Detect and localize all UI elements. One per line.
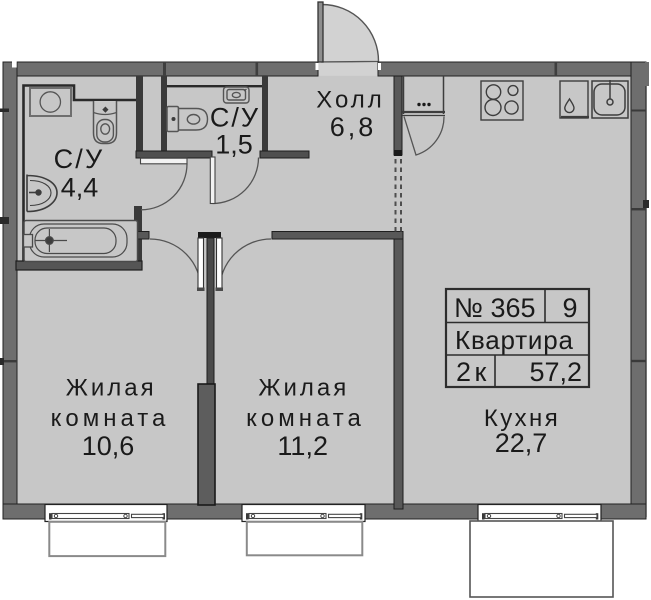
svg-text:Жилая: Жилая — [258, 375, 349, 402]
svg-text:57,2: 57,2 — [529, 357, 582, 387]
svg-text:С/У: С/У — [54, 144, 105, 174]
svg-text:6,8: 6,8 — [330, 112, 377, 142]
svg-text:1,5: 1,5 — [215, 130, 253, 160]
svg-text:комната: комната — [246, 405, 365, 432]
svg-text:11,2: 11,2 — [277, 431, 328, 461]
svg-text:2к: 2к — [456, 357, 490, 387]
svg-text:Жилая: Жилая — [66, 375, 157, 402]
svg-text:22,7: 22,7 — [495, 428, 548, 458]
svg-text:комната: комната — [51, 405, 170, 432]
svg-text:10,6: 10,6 — [82, 431, 135, 461]
svg-text:№ 365: № 365 — [454, 293, 536, 323]
svg-text:Квартира: Квартира — [455, 325, 574, 355]
svg-text:4,4: 4,4 — [61, 173, 99, 203]
svg-text:Холл: Холл — [316, 87, 385, 114]
svg-text:9: 9 — [562, 293, 577, 323]
svg-text:С/У: С/У — [210, 103, 260, 133]
